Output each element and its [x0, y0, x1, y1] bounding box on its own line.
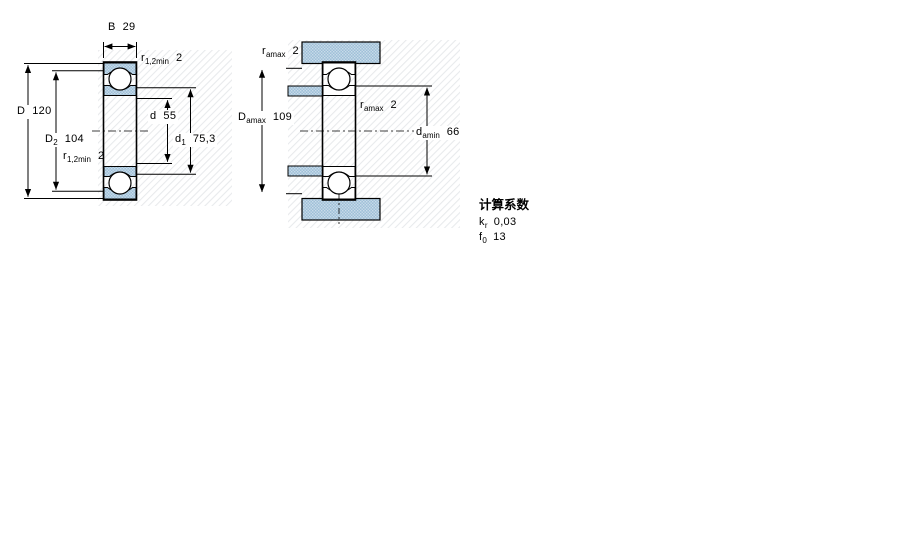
factor-row-f0: f013: [479, 231, 506, 245]
ball-top: [109, 68, 131, 90]
shaft-shoulder-bottom: [288, 166, 323, 176]
dim-label-fillet-min-bottom: r1,2min2: [63, 150, 104, 164]
dim-label-outer-diameter: D120: [15, 105, 54, 119]
dim-label-shoulder-diameter-d2: D2104: [43, 133, 86, 147]
factor-row-kr: kr0,03: [479, 216, 516, 230]
calc-factors-heading: 计算系数: [479, 194, 529, 213]
housing-section-top: [302, 42, 380, 64]
dim-label-shaft-abutment-diameter: damin66: [414, 126, 462, 140]
ball-bottom-2: [328, 172, 350, 194]
dim-label-fillet-abutment-top: ramax2: [262, 45, 299, 59]
dim-label-housing-abutment-diameter: Damax109: [236, 111, 294, 125]
dim-label-width-b: B29: [108, 21, 135, 35]
dim-label-fillet-min-top: r1,2min2: [141, 52, 182, 66]
bearing-section-view: [24, 42, 232, 206]
dim-label-shoulder-diameter-d1: d175,3: [173, 133, 217, 147]
dim-D: [24, 64, 103, 199]
ball-bottom: [109, 172, 131, 194]
bearing-drawing-page: B29 r1,2min2 D120 D2104 r1,2min2 d55 d17…: [0, 0, 900, 560]
shaft-shoulder-top: [288, 86, 323, 96]
housing-section-bottom: [302, 199, 380, 221]
ball-top-2: [328, 68, 350, 90]
dim-label-fillet-abutment-mid: ramax2: [360, 99, 397, 113]
dim-label-bore-diameter: d55: [148, 110, 178, 124]
technical-drawing: [0, 0, 900, 560]
